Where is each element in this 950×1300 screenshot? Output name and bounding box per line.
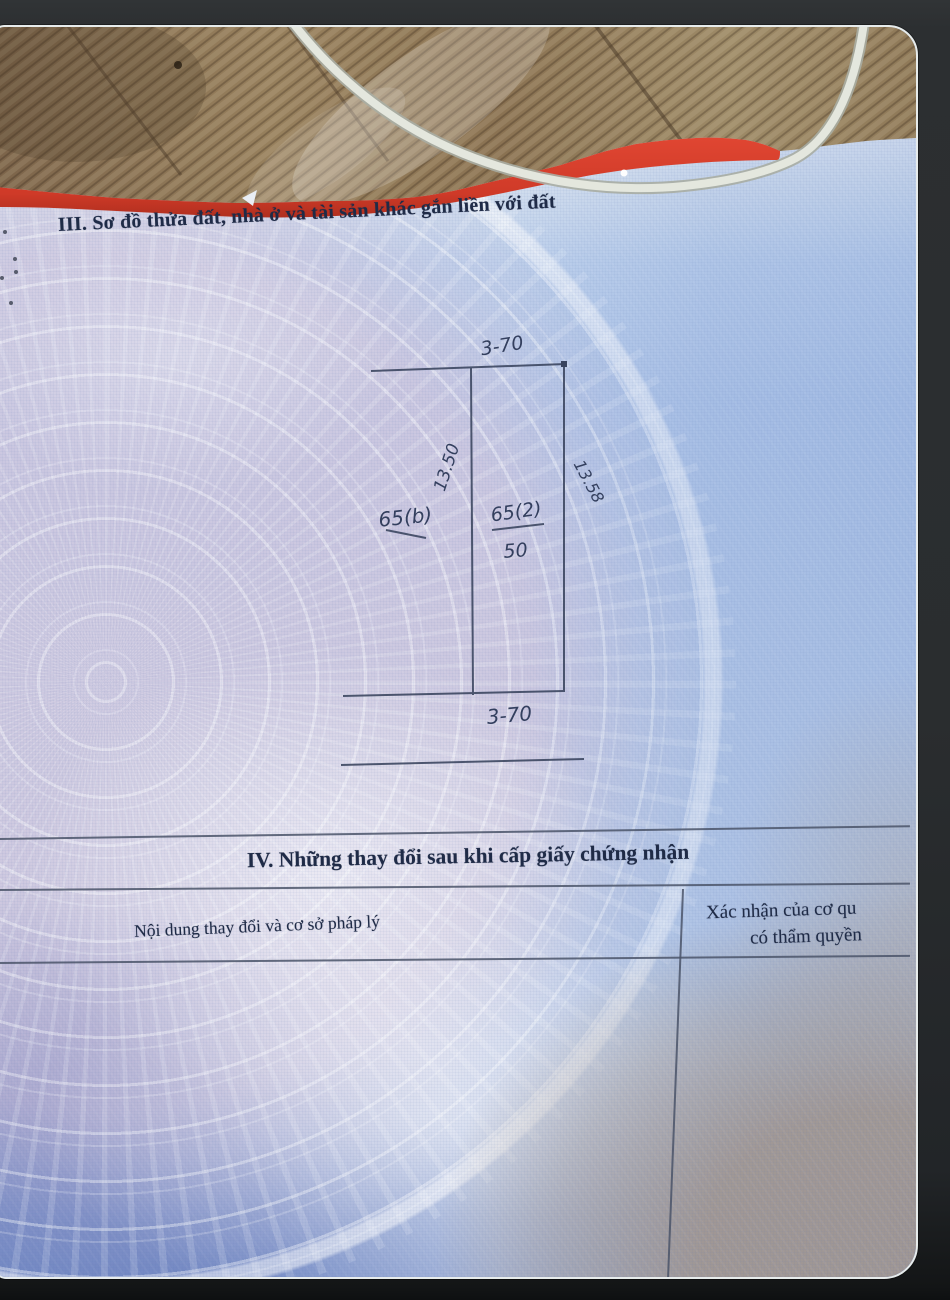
margin-ink-dot bbox=[9, 301, 13, 305]
dim-right: 13.58 bbox=[570, 457, 608, 506]
margin-ink-dot bbox=[14, 270, 18, 274]
photo-viewer-backdrop: { "document": { "section_iii": { "title"… bbox=[0, 0, 950, 1300]
adjacent-parcel-label: 65(b) bbox=[377, 502, 433, 531]
plot-diagram: 3-70 13.50 13.58 65(b) 65(2) 50 3-70 bbox=[326, 327, 621, 782]
diagram-lines bbox=[341, 364, 584, 765]
dim-left: 13.50 bbox=[430, 441, 464, 493]
dim-top: 3-70 bbox=[479, 332, 525, 360]
margin-ink-dot bbox=[13, 257, 17, 261]
margin-ink-dot bbox=[3, 230, 7, 234]
cable-glint bbox=[621, 170, 628, 177]
parcel-area: 50 bbox=[503, 539, 529, 563]
corner-mark bbox=[561, 361, 567, 367]
margin-ink-dot bbox=[0, 276, 4, 280]
parcel-number: 65(2) bbox=[489, 498, 543, 527]
floor-speck bbox=[174, 61, 182, 69]
dim-bottom: 3-70 bbox=[486, 701, 533, 729]
certificate-photo: III. Sơ đồ thửa đất, nhà ở và tài sản kh… bbox=[0, 25, 918, 1279]
